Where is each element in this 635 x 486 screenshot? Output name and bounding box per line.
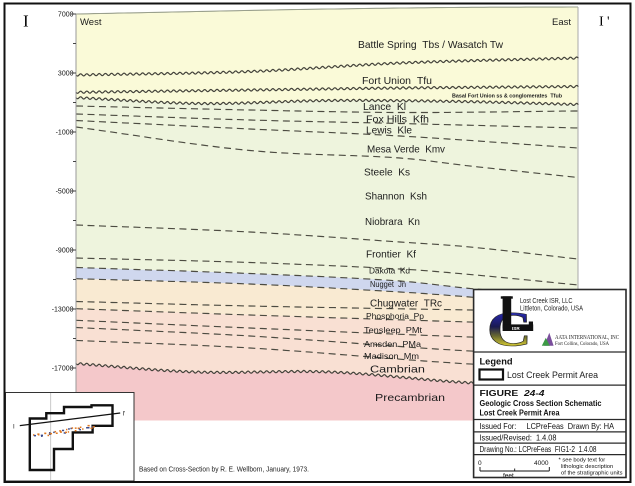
svg-text:Basal Fort Union ss & conglome: Basal Fort Union ss & conglomerates Tfub xyxy=(452,94,562,100)
svg-text:Niobrara Kn: Niobrara Kn xyxy=(365,216,420,228)
svg-text:FIGURE 24-4: FIGURE 24-4 xyxy=(480,388,545,398)
svg-text:of the stratigraphic units: of the stratigraphic units xyxy=(561,471,623,477)
svg-text:Lewis Kle: Lewis Kle xyxy=(366,125,412,137)
svg-text:-9000: -9000 xyxy=(56,247,74,254)
svg-text:Phosphoria Pp: Phosphoria Pp xyxy=(366,312,425,321)
svg-text:Shannon Ksh: Shannon Ksh xyxy=(365,191,427,203)
svg-text:Lost Creek ISR, LLC: Lost Creek ISR, LLC xyxy=(520,298,573,305)
svg-text:4000: 4000 xyxy=(534,460,549,467)
svg-text:ISR: ISR xyxy=(512,326,520,331)
svg-text:-13000: -13000 xyxy=(52,306,74,313)
svg-text:I: I xyxy=(23,12,29,31)
svg-text:Mesa Verde Kmv: Mesa Verde Kmv xyxy=(367,144,446,156)
svg-text:Based on Cross-Section by R. E: Based on Cross-Section by R. E. Wellborn… xyxy=(139,465,309,474)
svg-text:* see body text for: * see body text for xyxy=(559,458,606,464)
svg-text:lithologic description: lithologic description xyxy=(561,464,613,470)
svg-text:7000: 7000 xyxy=(58,11,74,18)
svg-text:East: East xyxy=(552,17,571,28)
svg-text:Amsden PMa: Amsden PMa xyxy=(364,340,422,349)
svg-text:Precambrian: Precambrian xyxy=(375,392,445,404)
svg-text:Lost Creek Permit Area: Lost Creek Permit Area xyxy=(480,408,560,418)
svg-text:Lost Creek Permit Area: Lost Creek Permit Area xyxy=(507,370,599,381)
svg-text:Littleton, Colorado, USA: Littleton, Colorado, USA xyxy=(520,306,583,313)
svg-text:Issued For: LCPreFeas Dra: Issued For: LCPreFeas Drawn By: HA xyxy=(480,421,615,431)
svg-text:Chugwater TRc: Chugwater TRc xyxy=(370,298,442,310)
svg-text:Geologic Cross Section Schemat: Geologic Cross Section Schematic xyxy=(480,398,602,408)
svg-text:Frontier Kf: Frontier Kf xyxy=(366,249,416,261)
svg-text:-1000: -1000 xyxy=(56,129,74,136)
svg-text:Cambrian: Cambrian xyxy=(370,364,425,376)
svg-text:-5000: -5000 xyxy=(56,188,74,195)
svg-text:Legend: Legend xyxy=(480,357,513,367)
svg-text:Battle Spring Tbs / Wasatch T: Battle Spring Tbs / Wasatch Tw xyxy=(358,39,503,51)
svg-text:Dakota Kd: Dakota Kd xyxy=(369,267,410,276)
svg-text:Issued/Revised: 1.4.08: Issued/Revised: 1.4.08 xyxy=(480,433,557,443)
svg-text:Madison Mm: Madison Mm xyxy=(364,352,419,361)
svg-text:-17000: -17000 xyxy=(52,365,74,372)
svg-text:0: 0 xyxy=(478,460,482,467)
svg-text:Nugget Jn: Nugget Jn xyxy=(370,280,406,289)
svg-text:Lance Kl: Lance Kl xyxy=(363,101,406,113)
svg-text:I': I' xyxy=(123,412,126,418)
svg-text:Fort Union Tfu: Fort Union Tfu xyxy=(362,75,432,87)
svg-text:feet: feet xyxy=(503,473,514,480)
svg-text:Steele Ks: Steele Ks xyxy=(364,167,410,179)
svg-text:3000: 3000 xyxy=(58,70,74,77)
svg-text:I ': I ' xyxy=(599,14,610,29)
svg-text:Tensleep PMt: Tensleep PMt xyxy=(364,326,423,335)
svg-text:West: West xyxy=(80,17,102,28)
svg-text:Drawing No.: LCPreFeas FIG1-2: Drawing No.: LCPreFeas FIG1-2 1.4.08 xyxy=(480,444,597,454)
svg-text:Fort Collins, Colorado, USA: Fort Collins, Colorado, USA xyxy=(555,341,609,347)
